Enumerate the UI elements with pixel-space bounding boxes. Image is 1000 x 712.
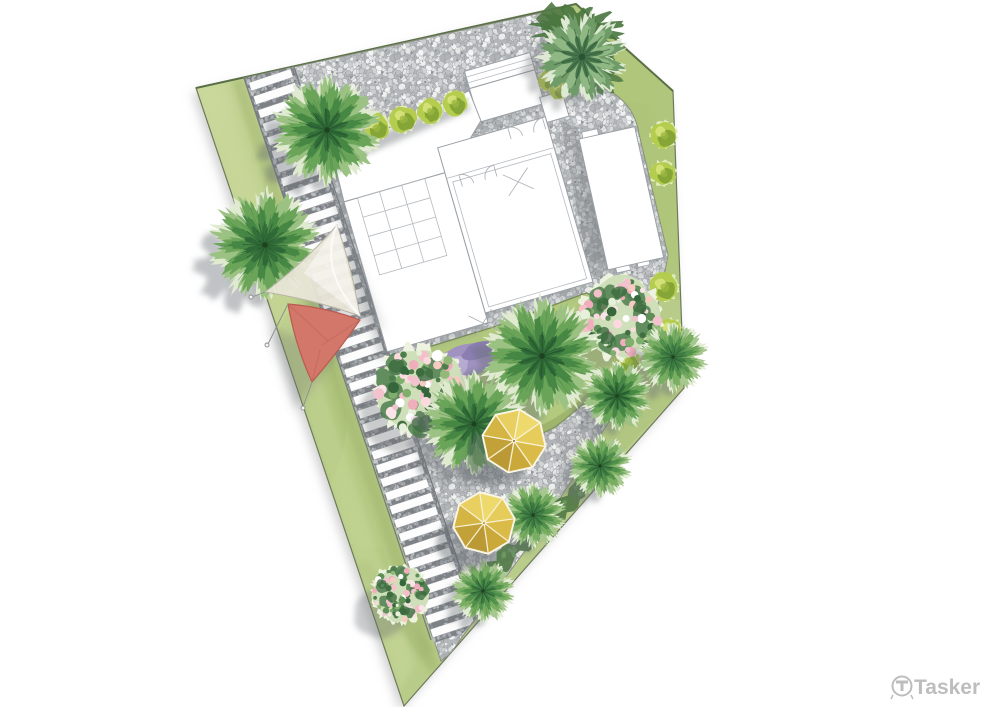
svg-text:Tasker: Tasker [914,676,980,699]
